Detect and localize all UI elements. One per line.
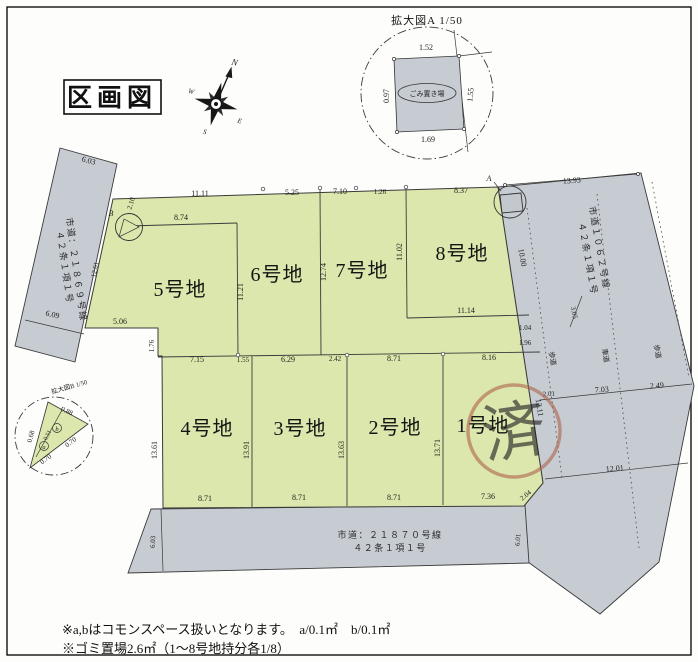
garbage-area-label: ごみ置き場 xyxy=(410,89,445,98)
dim-label: 7.10 xyxy=(333,187,347,196)
dim-label: 5.25 xyxy=(285,188,299,197)
commons-a-label: a xyxy=(42,444,45,451)
road-name-label: 市道：２１８７０号線 xyxy=(337,529,442,540)
plot-6-label: 6号地 xyxy=(251,263,304,286)
plot-4-label: 4号地 xyxy=(181,417,234,440)
dim-label: 7.03 xyxy=(595,385,610,395)
compass-south-label: S xyxy=(202,128,208,137)
detail-a-figure: 拡大図A 1/50 ごみ置き場 1.52 1.69 0.97 1.55 xyxy=(361,13,493,159)
sold-stamp-text: 済 xyxy=(478,393,551,472)
callout-a-label: A xyxy=(486,174,492,183)
dim-label: 11.11 xyxy=(191,189,208,198)
corner-dot xyxy=(395,130,398,133)
dim-label: 6.01 xyxy=(513,533,522,546)
corner-dot xyxy=(637,173,640,176)
dim-label: 8.71 xyxy=(387,493,401,502)
dim-label: 1.55 xyxy=(465,87,475,102)
dim-label: 8.37 xyxy=(454,186,468,195)
plot-7-label: 7号地 xyxy=(336,259,389,282)
dim-label: 1.52 xyxy=(419,43,433,52)
note-commons: ※a,bはコモンスペース扱いとなります。 a/0.1㎡ b/0.1㎡ xyxy=(62,622,390,637)
dim-label: 13.93 xyxy=(563,175,582,185)
dim-label: 7.15 xyxy=(190,355,204,364)
dim-label: 1.04 xyxy=(519,324,532,332)
dim-label: 8.74 xyxy=(174,213,188,222)
detail-b-title: 拡大図B 1/50 xyxy=(50,377,88,396)
dim-label: 11.02 xyxy=(395,243,404,261)
dim-label: 1.76 xyxy=(148,339,156,352)
plot-2-label: 2号地 xyxy=(369,416,422,439)
dim-label: 12.01 xyxy=(605,463,624,474)
dim-label: 8.16 xyxy=(482,353,496,362)
page-title: 区画図 xyxy=(67,85,157,112)
note-garbage: ※ゴミ置場2.6㎡（1～8号地持分各1/8） xyxy=(62,641,290,656)
dim-label: 11.14 xyxy=(457,306,475,315)
tick-circle xyxy=(354,186,358,190)
corner-dot xyxy=(392,57,395,60)
compass-east-label: E xyxy=(236,117,244,126)
dim-label: 1.26 xyxy=(374,188,387,196)
garbage-area-map-shape xyxy=(500,193,523,213)
plot-5-label: 5号地 xyxy=(154,278,207,301)
corner-dot xyxy=(462,127,465,130)
tick-circle xyxy=(318,186,322,190)
road-clause-label: ４２条１項１号 xyxy=(353,542,427,553)
road-edge-line xyxy=(459,52,492,56)
dim-label: 13.61 xyxy=(150,441,159,459)
tick-circle xyxy=(345,353,349,357)
dim-label: 1.55 xyxy=(237,356,250,364)
plot-8-label: 8号地 xyxy=(436,242,489,265)
compass-rose-icon: N E S W xyxy=(179,48,257,144)
tick-circle xyxy=(404,185,408,189)
road-bottom: 6.03 6.01 市道：２１８７０号線 ４２条１項１号 xyxy=(128,505,529,573)
dim-label: 0.97 xyxy=(382,89,391,103)
road-bottom-area xyxy=(128,505,529,573)
dim-label: 6.03 xyxy=(149,535,157,548)
dim-label: 5.06 xyxy=(113,317,127,326)
plot-map-drawing: 区画図 N E S W 拡大図A 1/50 ごみ置き場 1.52 1.69 0.… xyxy=(0,0,698,662)
tick-circle xyxy=(261,187,265,191)
dim-label: 7.36 xyxy=(481,492,495,501)
tick-circle xyxy=(441,352,445,356)
dim-label: 8.71 xyxy=(198,494,212,503)
dim-label: 8.71 xyxy=(387,354,401,363)
dim-label: 6.29 xyxy=(281,355,295,364)
callout-b-label: B xyxy=(109,209,114,218)
dim-label: 13.91 xyxy=(242,441,251,459)
dim-label: 0.68 xyxy=(26,429,37,443)
detail-b-figure: 拡大図B 1/50 a b 0.88 0.68 0.70 0.70 0.51 xyxy=(15,377,93,475)
dim-label: 12.74 xyxy=(319,263,328,281)
dim-label: 1.96 xyxy=(519,339,532,347)
compass-north-label: N xyxy=(230,56,240,68)
dim-label: 1.69 xyxy=(421,135,435,144)
dim-label: 2.42 xyxy=(329,355,342,363)
dim-label: 13.63 xyxy=(337,441,346,459)
corner-dot xyxy=(457,54,460,57)
dim-label: 13.71 xyxy=(433,439,442,457)
plot-map-page: 区画図 N E S W 拡大図A 1/50 ごみ置き場 1.52 1.69 0.… xyxy=(0,0,698,662)
compass-needle-arrow xyxy=(225,66,234,78)
dim-label: 11.21 xyxy=(236,283,245,301)
dim-label: 8.71 xyxy=(292,493,306,502)
detail-a-title: 拡大図A 1/50 xyxy=(391,13,463,27)
plot-3-label: 3号地 xyxy=(274,417,327,440)
dim-label: 2.49 xyxy=(650,381,665,391)
compass-west-label: W xyxy=(187,87,196,96)
